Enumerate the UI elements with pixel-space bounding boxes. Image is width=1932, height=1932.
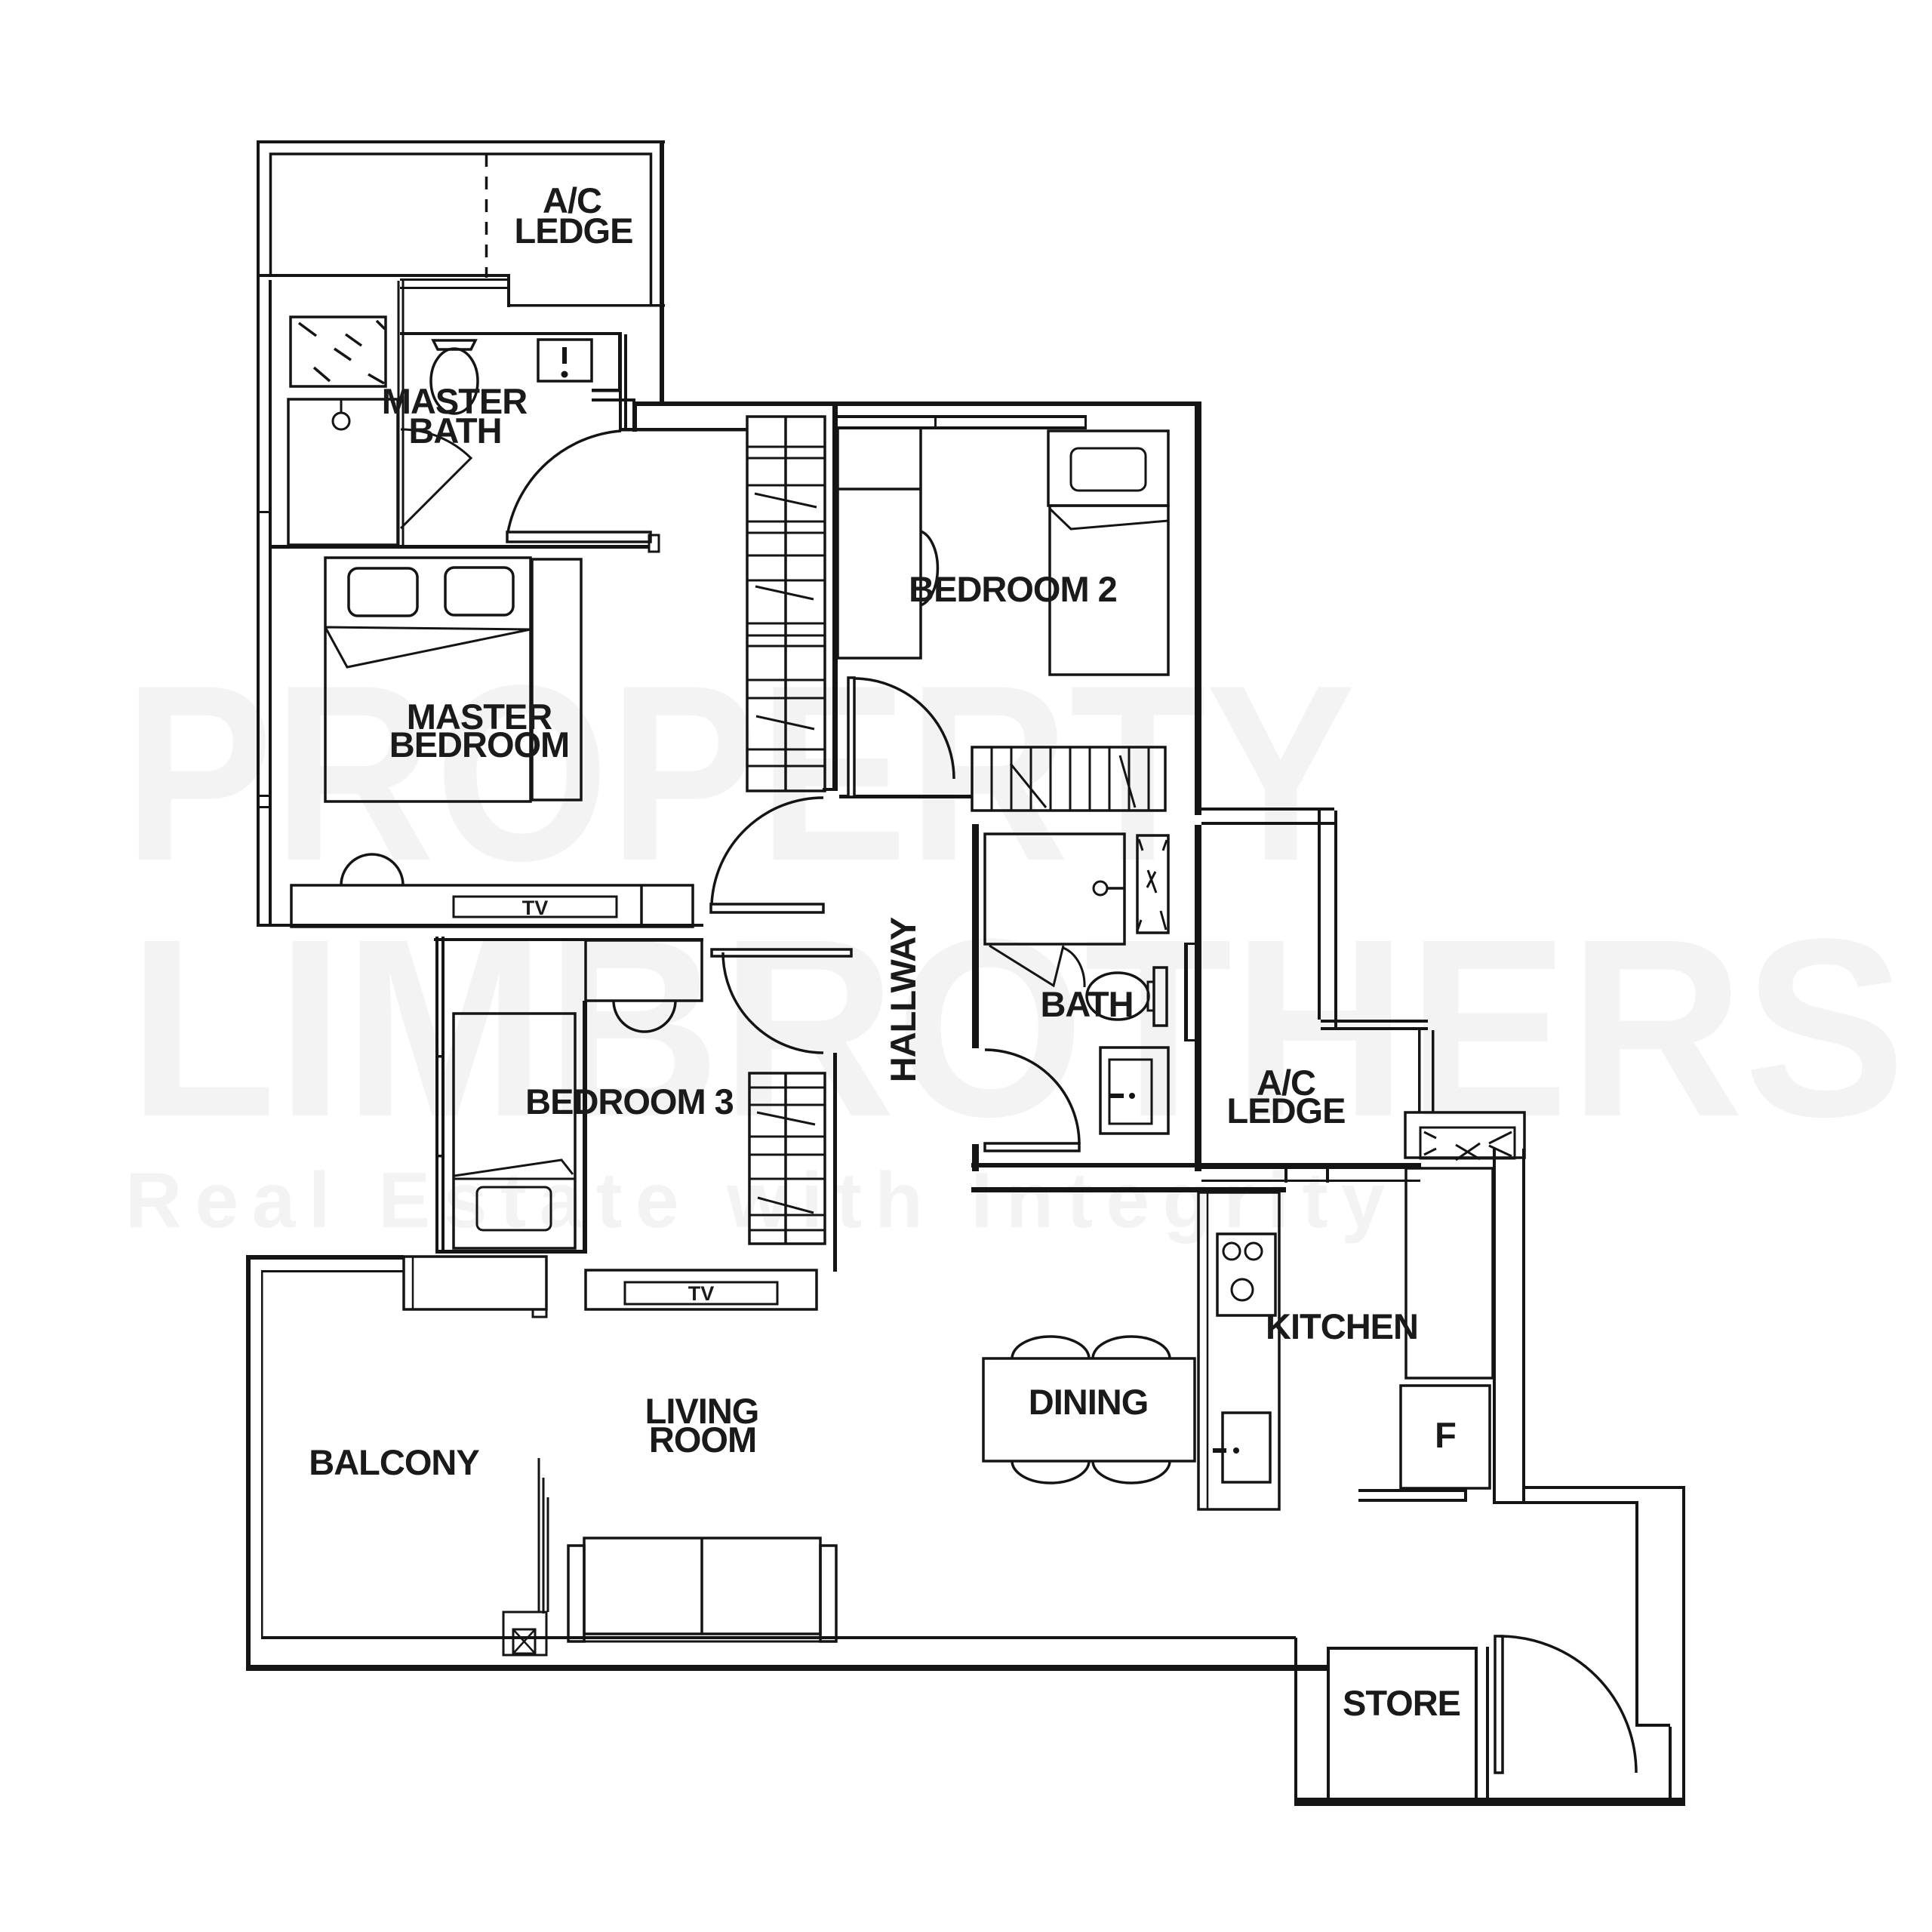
svg-text:STORE: STORE — [1343, 1683, 1460, 1723]
svg-text:DINING: DINING — [1029, 1382, 1149, 1422]
svg-text:PROPERTY: PROPERTY — [124, 633, 1355, 913]
svg-text:LEDGE: LEDGE — [515, 211, 633, 251]
svg-text:LIMBROTHERS: LIMBROTHERS — [128, 887, 1906, 1170]
svg-text:TV: TV — [688, 1282, 715, 1305]
svg-text:TV: TV — [522, 897, 549, 919]
svg-text:F: F — [1435, 1415, 1456, 1455]
svg-text:BEDROOM 2: BEDROOM 2 — [909, 569, 1117, 609]
svg-text:BATH: BATH — [1040, 984, 1133, 1024]
svg-text:ROOM: ROOM — [649, 1420, 756, 1460]
svg-text:HALLWAY: HALLWAY — [883, 917, 923, 1082]
svg-text:BATH: BATH — [408, 411, 501, 451]
svg-text:LEDGE: LEDGE — [1227, 1091, 1346, 1131]
svg-text:BALCONY: BALCONY — [309, 1442, 479, 1482]
svg-text:KITCHEN: KITCHEN — [1266, 1306, 1418, 1346]
svg-text:BEDROOM: BEDROOM — [389, 724, 569, 764]
svg-text:BEDROOM 3: BEDROOM 3 — [525, 1081, 734, 1121]
